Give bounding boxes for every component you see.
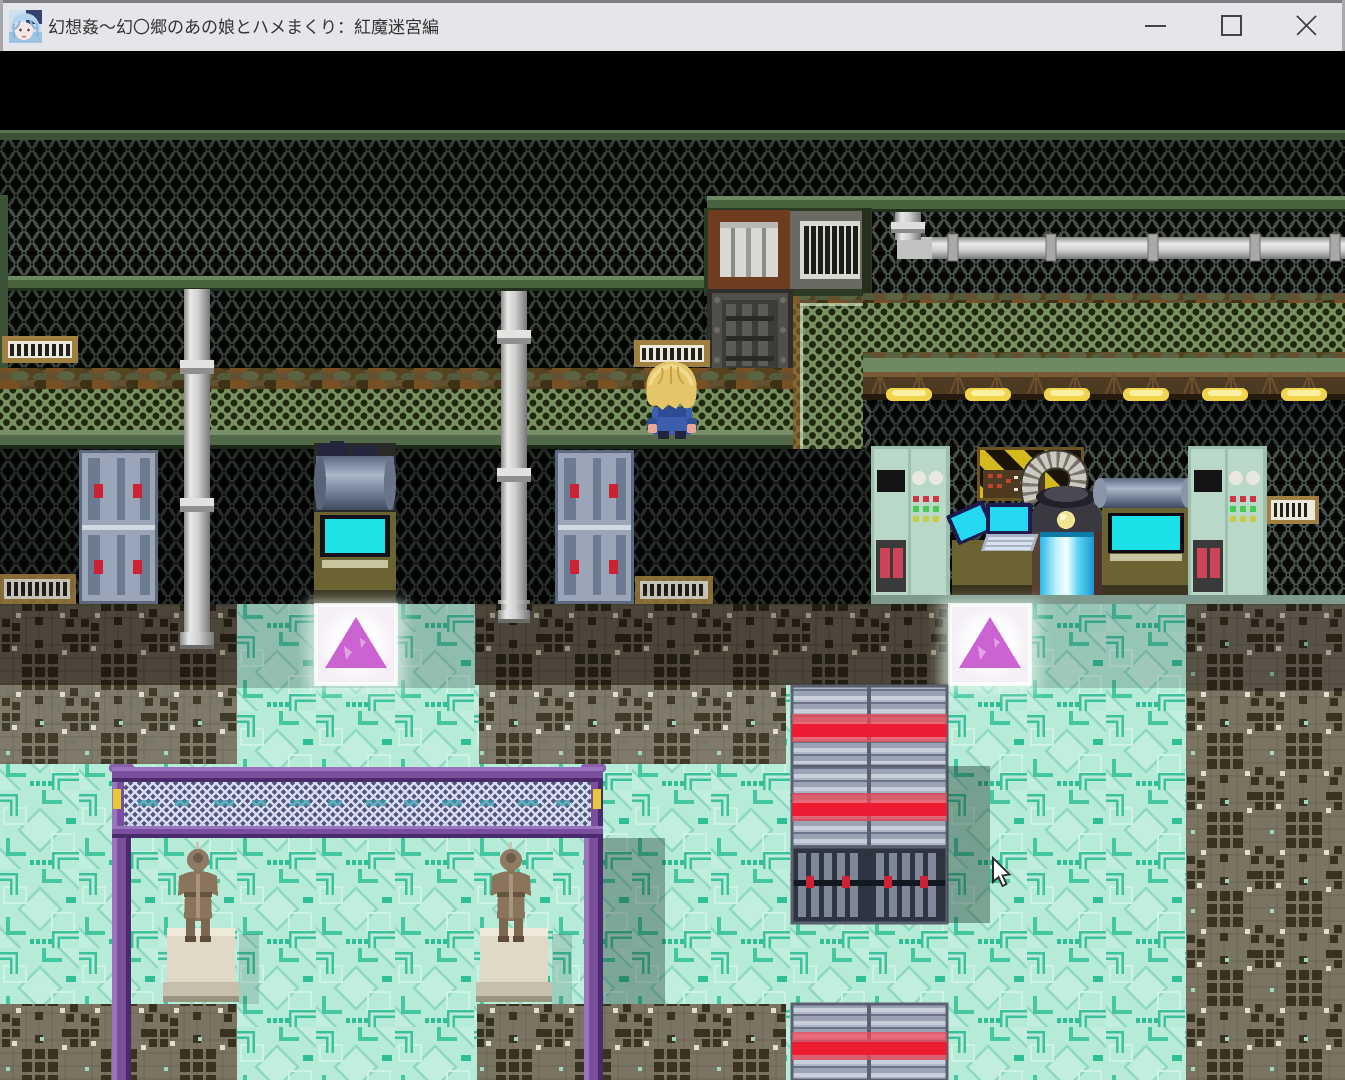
svg-text:幻想姦～幻〇郷のあの娘とハメまくり：紅魔迷宮編: 幻想姦～幻〇郷のあの娘とハメまくり：紅魔迷宮編 xyxy=(48,18,439,37)
